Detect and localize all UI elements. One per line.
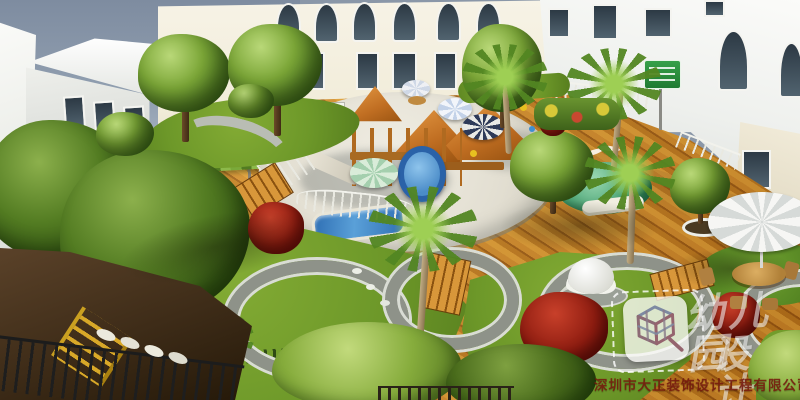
lower-window <box>434 52 457 90</box>
small-bush-tree <box>228 84 274 118</box>
low-fence <box>378 386 514 400</box>
patio-table <box>732 262 786 286</box>
right-window <box>592 4 618 40</box>
right-arched-window <box>779 42 800 98</box>
lower-window <box>356 52 379 90</box>
watermark: 幼儿园 设计 深圳市大正装饰设计工程有限公司 <box>600 286 800 400</box>
arched-window <box>436 2 461 42</box>
palm-tree <box>462 44 548 154</box>
palm-tree <box>368 186 478 336</box>
picnic-table <box>408 96 426 105</box>
dazheng-cube-logo <box>622 295 689 362</box>
arched-window <box>352 2 377 42</box>
tree-shadow <box>500 200 660 252</box>
watermark-company-name: 深圳市大正装饰设计工程有限公司 <box>594 374 800 394</box>
umbrella-green <box>350 158 398 188</box>
tree <box>138 34 230 118</box>
small-bush-tree <box>96 112 154 156</box>
white-stone <box>352 268 362 274</box>
right-window <box>548 8 570 38</box>
flower-bed <box>534 98 620 130</box>
right-window <box>644 8 672 38</box>
right-window <box>704 0 725 17</box>
kindergarten-courtyard-rendering: 幼儿园 设计 深圳市大正装饰设计工程有限公司 <box>0 0 800 400</box>
arched-window <box>392 2 417 42</box>
cube-wireframe-icon <box>622 295 689 362</box>
picnic-umbrella <box>402 80 430 97</box>
